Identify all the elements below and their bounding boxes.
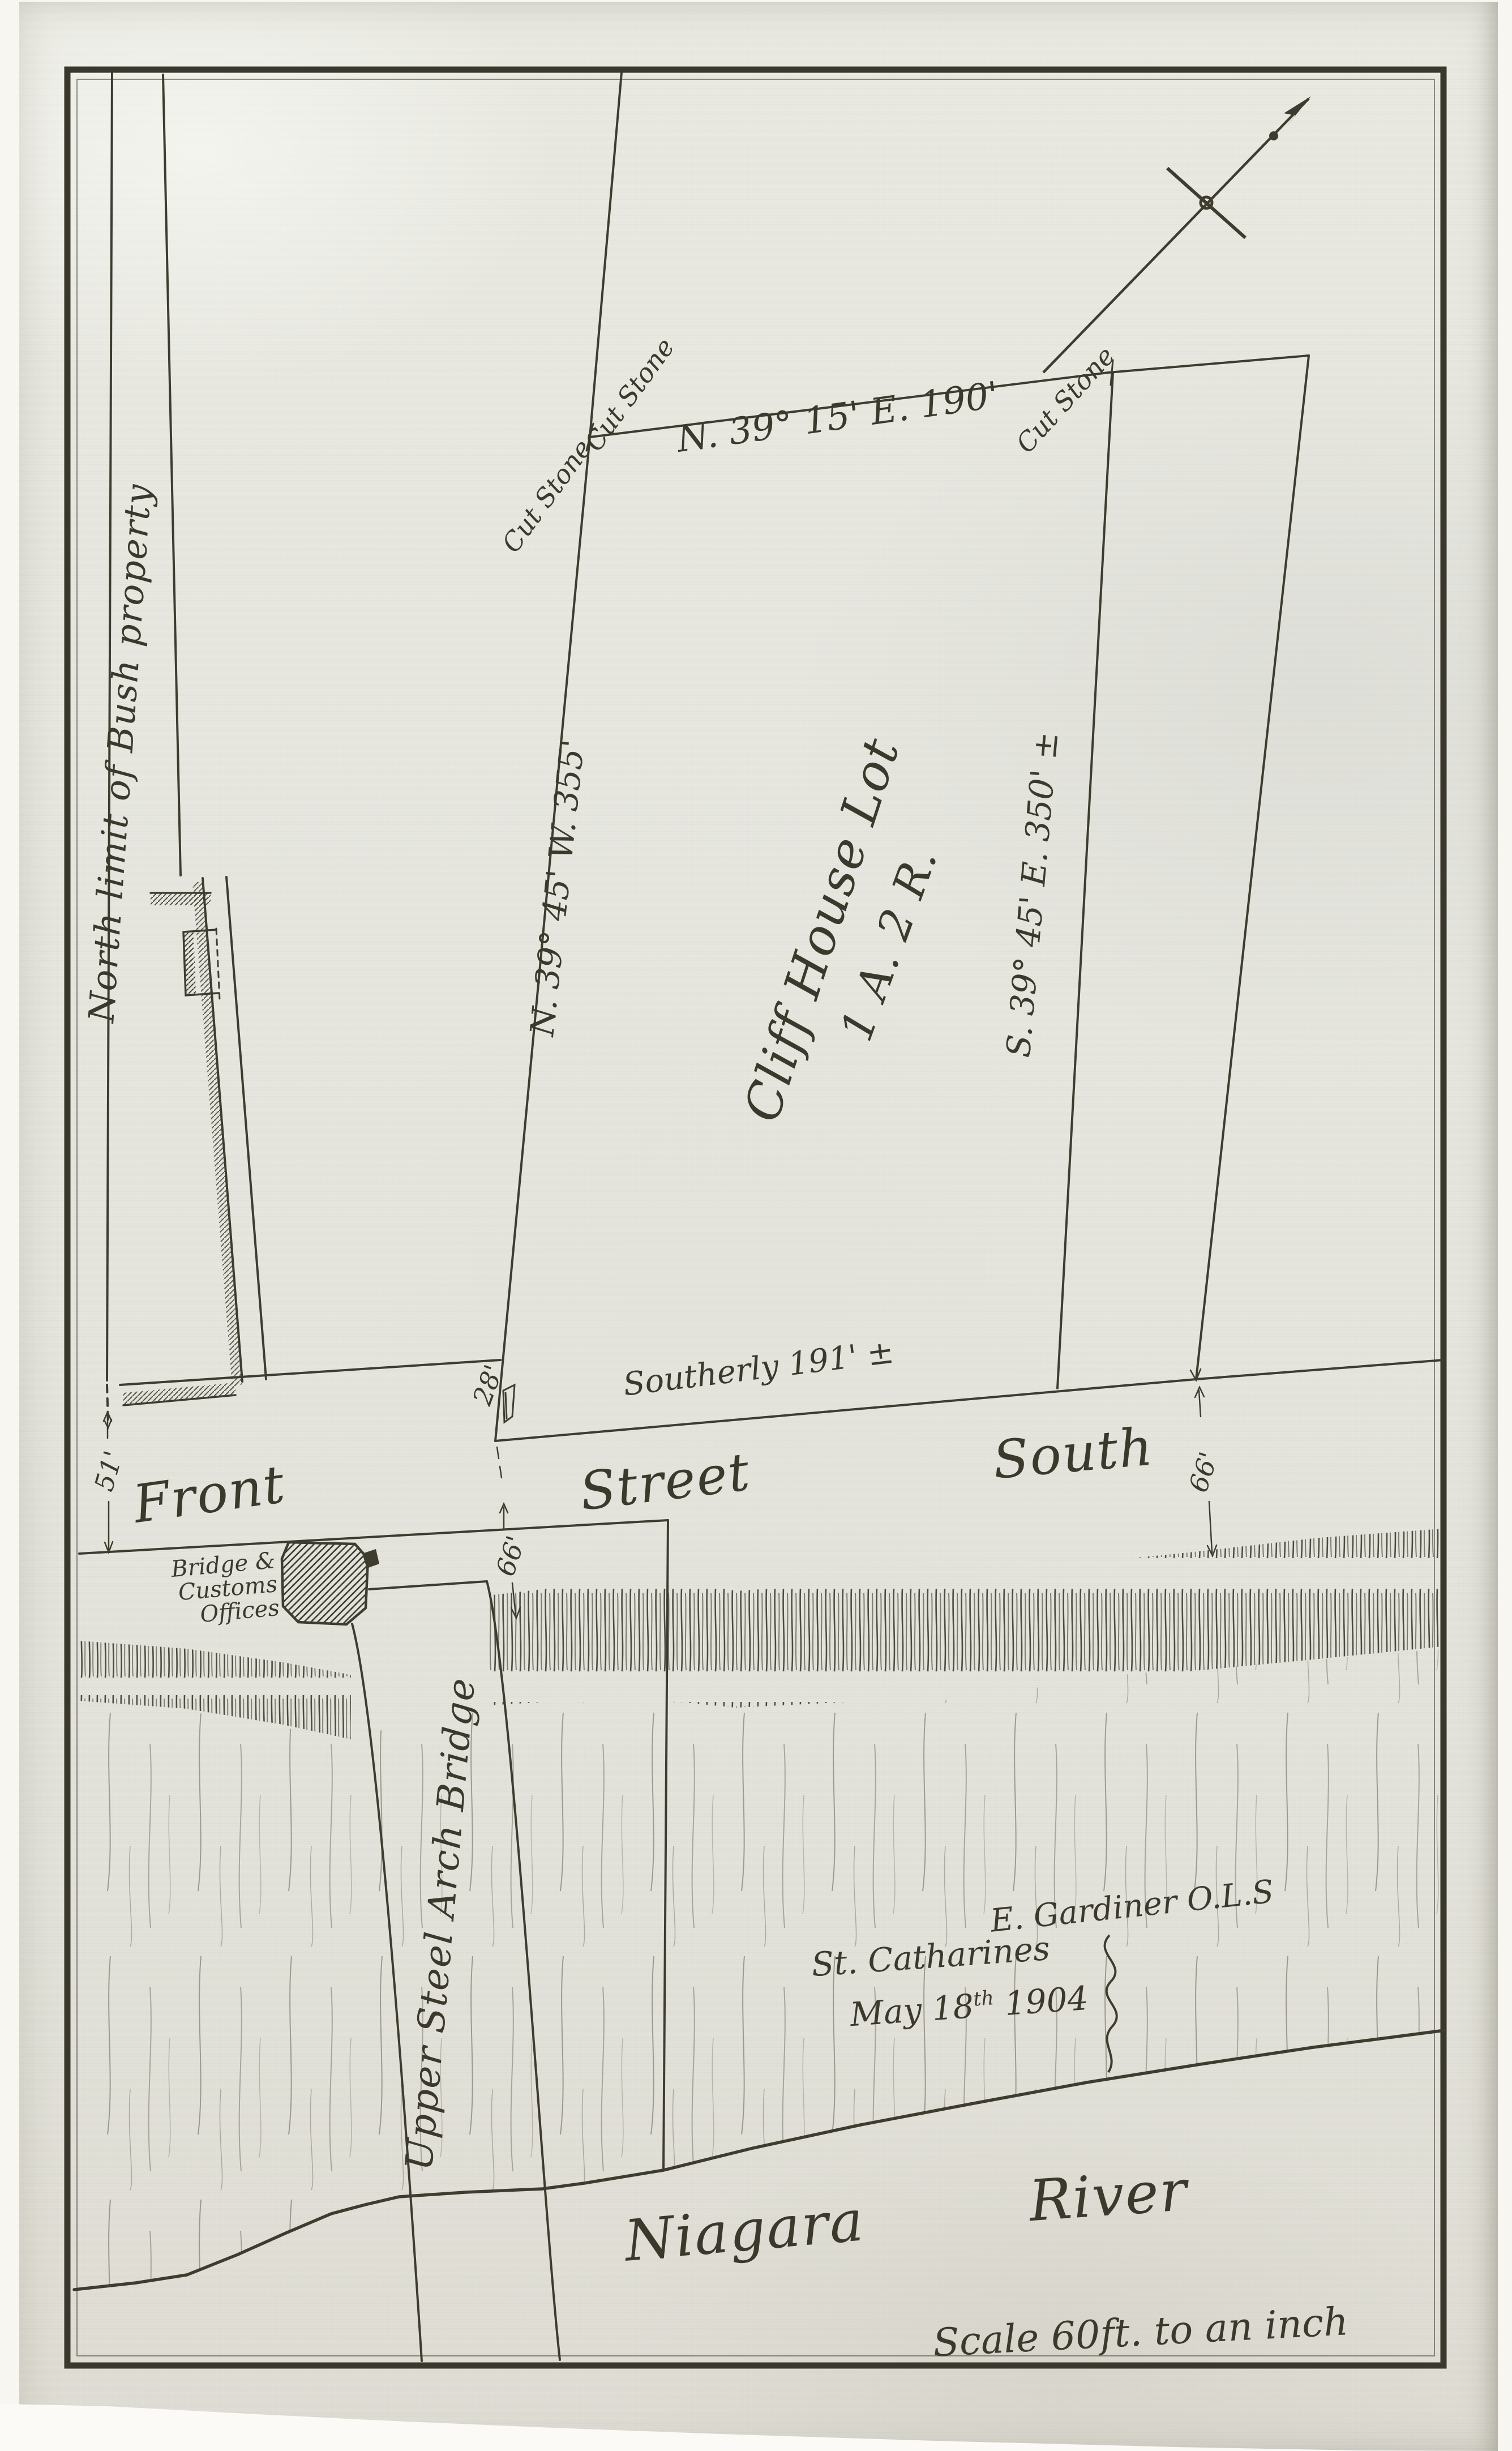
date-ordinal: th bbox=[973, 1987, 995, 2011]
lot-east-boundary-line bbox=[1057, 373, 1113, 1388]
dim-66-right-arrow-down-icon bbox=[1207, 1502, 1217, 1556]
dim-51-arrow-down-icon bbox=[105, 1502, 113, 1552]
corner-flag-icon bbox=[503, 1385, 515, 1422]
lot-west-extension-line bbox=[590, 72, 622, 437]
lane-west-line bbox=[203, 878, 242, 1381]
corner-dashes bbox=[497, 1447, 502, 1478]
river-name-word2: River bbox=[1027, 2161, 1189, 2231]
survey-drawing bbox=[0, 0, 1512, 2451]
north-arrow-icon bbox=[1043, 96, 1311, 373]
street-north-west-line bbox=[120, 1360, 500, 1385]
dim-66-mid-arrow-up-icon bbox=[500, 1504, 508, 1529]
east-parcel-line bbox=[1196, 356, 1309, 1379]
street-south-label: South bbox=[991, 1420, 1155, 1488]
date-year: 1904 bbox=[993, 1979, 1089, 2024]
survey-map-sheet: North limit of Bush property Cut Stone C… bbox=[0, 0, 1512, 2451]
dim-51-arrow-up-icon bbox=[104, 1412, 112, 1438]
dim-66-right-arrow-up-icon bbox=[1195, 1387, 1204, 1417]
customs-building-label: Bridge & Customs Offices bbox=[170, 1549, 281, 1629]
bush-fence-line bbox=[163, 75, 181, 875]
customs-building bbox=[282, 1542, 379, 1624]
building-spur-line bbox=[369, 1581, 487, 1589]
cliff-face-strokes bbox=[85, 1649, 1442, 2289]
bush-building-dashed-side bbox=[216, 929, 220, 1000]
